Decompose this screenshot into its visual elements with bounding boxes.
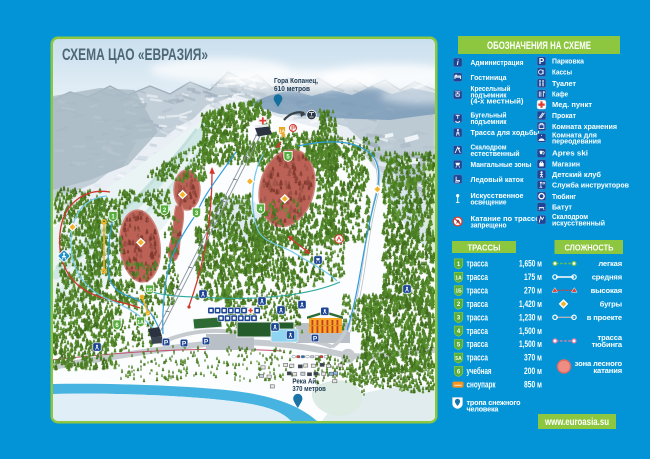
svg-text:Apres ski: Apres ski bbox=[552, 149, 588, 158]
svg-text:Мед. пункт: Мед. пункт bbox=[552, 100, 592, 109]
svg-text:1,650 м: 1,650 м bbox=[519, 259, 542, 270]
svg-text:Служба инструкторов: Служба инструкторов bbox=[552, 181, 630, 190]
svg-text:средняя: средняя bbox=[592, 273, 622, 282]
svg-text:человека: человека bbox=[467, 404, 500, 413]
svg-text:1,230 м: 1,230 м bbox=[519, 312, 542, 323]
svg-text:Ледовый каток: Ледовый каток bbox=[471, 175, 524, 184]
svg-text:трасса: трасса bbox=[467, 339, 489, 350]
svg-text:1Б: 1Б bbox=[455, 289, 462, 295]
svg-text:подъемник: подъемник bbox=[471, 117, 507, 126]
svg-text:бугры: бугры bbox=[600, 300, 622, 309]
svg-text:Гостиница: Гостиница bbox=[471, 73, 508, 82]
svg-text:Кафе: Кафе bbox=[552, 90, 568, 99]
svg-text:Кассы: Кассы bbox=[552, 68, 572, 77]
svg-text:850 м: 850 м bbox=[524, 380, 542, 391]
svg-text:270 м: 270 м bbox=[524, 285, 542, 296]
svg-text:370 метров: 370 метров bbox=[292, 384, 326, 393]
svg-text:P: P bbox=[539, 57, 545, 66]
svg-text:1А: 1А bbox=[455, 275, 462, 281]
svg-text:1А: 1А bbox=[279, 129, 286, 134]
svg-text:Тюбинг: Тюбинг bbox=[552, 192, 576, 201]
svg-text:5А: 5А bbox=[455, 356, 462, 362]
svg-text:естественный: естественный bbox=[471, 149, 520, 158]
svg-text:ТРАССЫ: ТРАССЫ bbox=[468, 243, 501, 253]
svg-text:высокая: высокая bbox=[591, 286, 622, 295]
svg-text:легкая: легкая bbox=[598, 259, 622, 268]
svg-text:Администрация: Администрация bbox=[471, 58, 524, 67]
svg-text:сноупарк: сноупарк bbox=[467, 380, 496, 391]
svg-text:610 метров: 610 метров bbox=[274, 84, 310, 93]
svg-text:в проекте: в проекте bbox=[587, 313, 622, 322]
svg-text:катания: катания bbox=[593, 366, 622, 375]
svg-text:Батут: Батут bbox=[552, 203, 572, 212]
svg-text:искусственный: искусственный bbox=[552, 218, 605, 227]
svg-text:трасса: трасса bbox=[467, 326, 489, 337]
svg-text:(4-х местный): (4-х местный) bbox=[471, 97, 525, 106]
svg-text:1А: 1А bbox=[137, 320, 144, 326]
svg-text:www.euroasia.su: www.euroasia.su bbox=[544, 417, 609, 428]
svg-text:переодевания: переодевания bbox=[552, 137, 601, 146]
svg-text:Трасса для ходьбы: Трасса для ходьбы bbox=[471, 128, 540, 137]
svg-text:СХЕМА ЦАО «ЕВРАЗИЯ»: СХЕМА ЦАО «ЕВРАЗИЯ» bbox=[62, 45, 208, 64]
svg-text:учебная: учебная bbox=[467, 366, 492, 377]
svg-text:1,500 м: 1,500 м bbox=[519, 339, 542, 350]
svg-text:1,500 м: 1,500 м bbox=[519, 326, 542, 337]
svg-text:запрещено: запрещено bbox=[471, 220, 508, 229]
svg-text:трасса: трасса bbox=[467, 312, 489, 323]
svg-text:Прокат: Прокат bbox=[552, 111, 576, 120]
svg-text:Мангальные зоны: Мангальные зоны bbox=[471, 160, 532, 169]
svg-text:трасса: трасса bbox=[467, 272, 489, 283]
svg-text:трасса: трасса bbox=[467, 259, 489, 270]
svg-text:освещение: освещение bbox=[471, 197, 507, 206]
svg-text:трасса: трасса bbox=[467, 353, 489, 364]
svg-text:ОБОЗНАЧЕНИЯ НА СХЕМЕ: ОБОЗНАЧЕНИЯ НА СХЕМЕ bbox=[487, 40, 591, 52]
svg-text:1,420 м: 1,420 м bbox=[519, 299, 542, 310]
svg-text:трасса: трасса bbox=[467, 285, 489, 296]
svg-text:175 м: 175 м bbox=[524, 272, 542, 283]
svg-text:трасса: трасса bbox=[467, 299, 489, 310]
svg-text:Туалет: Туалет bbox=[552, 79, 576, 88]
svg-text:Парковка: Парковка bbox=[552, 57, 585, 66]
svg-text:тюбинга: тюбинга bbox=[592, 340, 623, 349]
svg-text:СЛОЖНОСТЬ: СЛОЖНОСТЬ bbox=[565, 243, 614, 253]
svg-text:Детский клуб: Детский клуб bbox=[552, 170, 602, 179]
svg-text:200 м: 200 м bbox=[524, 366, 542, 377]
svg-text:370 м: 370 м bbox=[524, 353, 542, 364]
svg-text:1Б: 1Б bbox=[146, 288, 153, 294]
svg-text:Магазин: Магазин bbox=[552, 160, 580, 169]
